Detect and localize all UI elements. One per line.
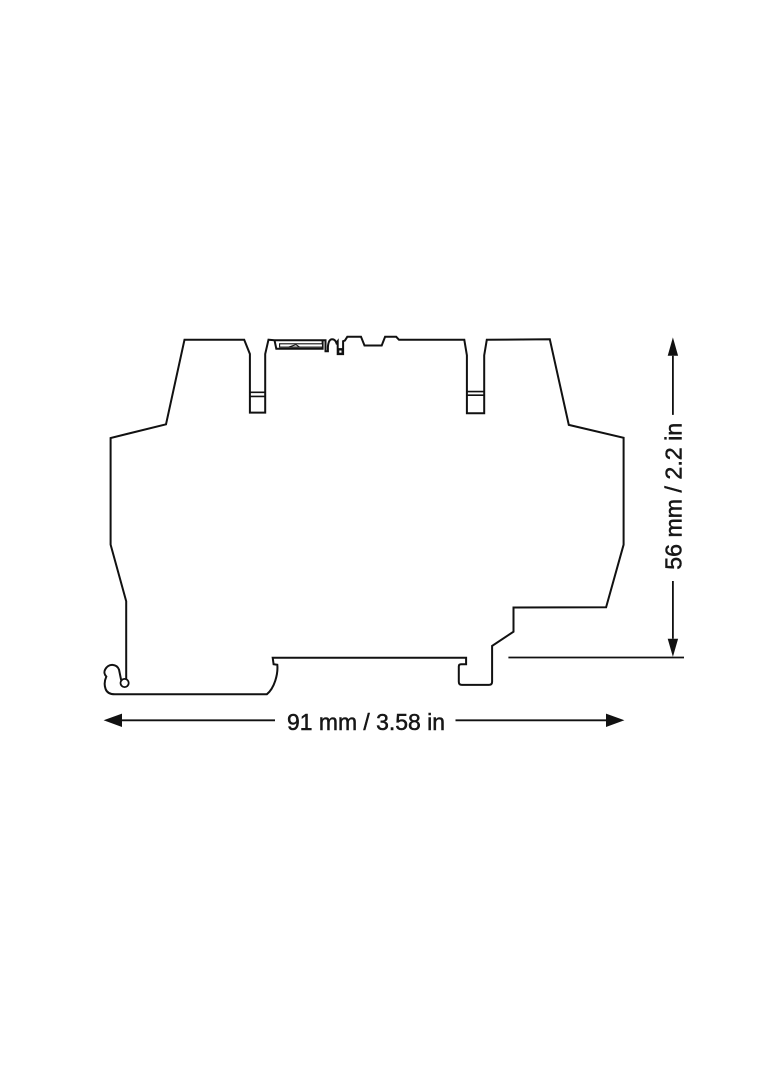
svg-text:56 mm / 2.2 in: 56 mm / 2.2 in (661, 423, 687, 570)
svg-text:91 mm / 3.58 in: 91 mm / 3.58 in (287, 709, 445, 735)
